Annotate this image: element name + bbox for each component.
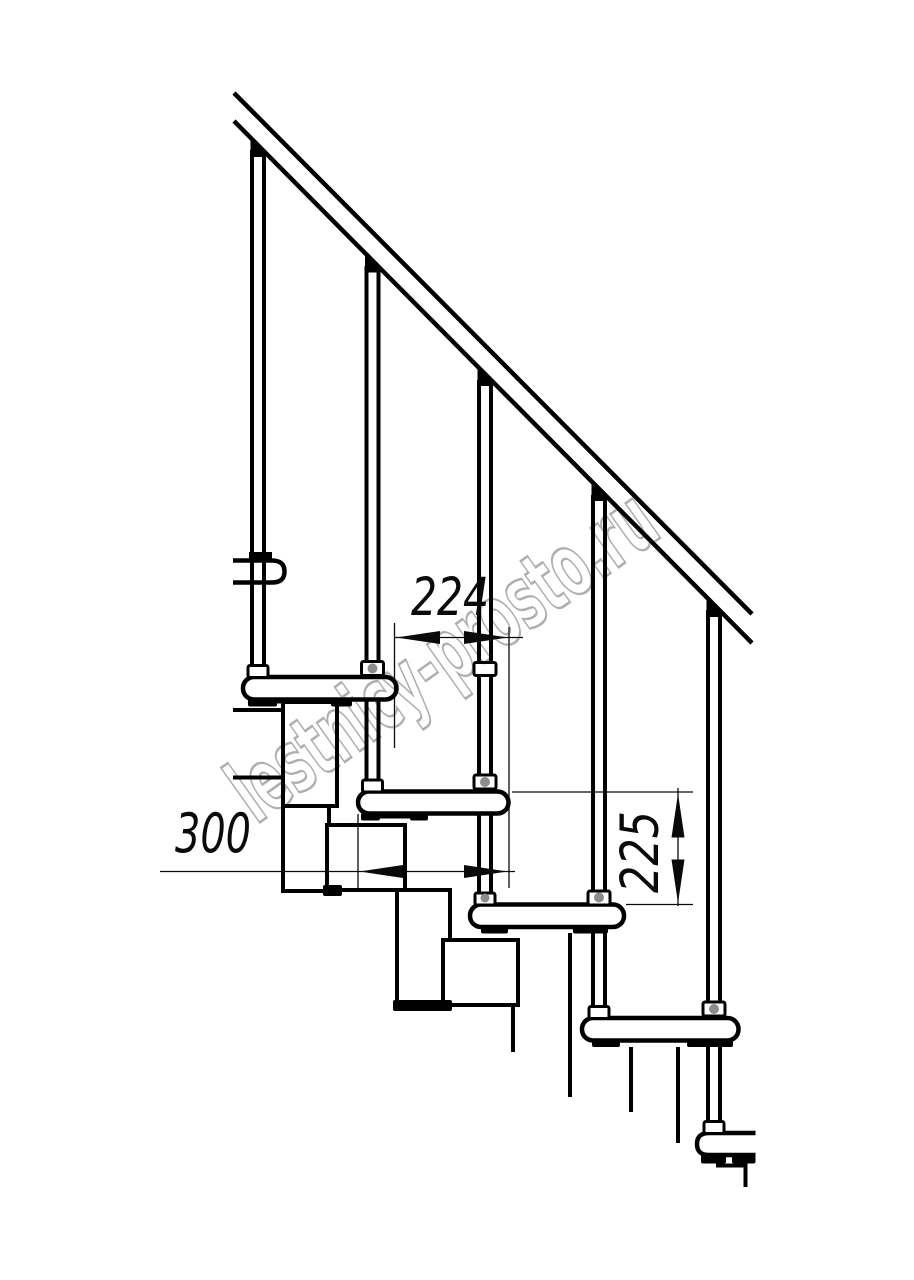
pad bbox=[380, 813, 410, 819]
staircase-technical-drawing: 224 300 225 lestnicy-prosto.ru bbox=[0, 0, 914, 1280]
clamp-circle bbox=[480, 777, 490, 787]
module-pad-a bbox=[323, 885, 342, 896]
module-box-c bbox=[443, 940, 518, 1005]
pad bbox=[410, 813, 428, 821]
tread-6-partial bbox=[697, 1133, 756, 1155]
clamp-circle bbox=[481, 894, 490, 903]
pad bbox=[361, 813, 380, 821]
clamp-circle bbox=[709, 1004, 719, 1014]
arrow-down bbox=[672, 860, 685, 904]
dim-value-depth: 300 bbox=[175, 802, 251, 865]
module-box-b bbox=[327, 825, 405, 890]
baluster-1-foot bbox=[248, 666, 268, 678]
pad bbox=[481, 927, 508, 934]
tread-4 bbox=[470, 905, 624, 928]
dim-value-rise: 225 bbox=[610, 811, 671, 893]
baluster-5-foot bbox=[704, 1122, 724, 1134]
pad bbox=[592, 1040, 620, 1047]
tread-5 bbox=[582, 1018, 739, 1041]
tread-1-partial bbox=[233, 561, 285, 583]
pad bbox=[687, 1040, 733, 1047]
pad bbox=[248, 699, 277, 707]
arrow-right bbox=[464, 865, 508, 878]
bottom-module-cut bbox=[716, 1166, 746, 1188]
baluster-2-foot bbox=[363, 780, 383, 792]
tread-3 bbox=[358, 792, 509, 814]
pad bbox=[573, 927, 608, 934]
arrow-up bbox=[672, 794, 685, 838]
baluster-5 bbox=[708, 610, 720, 1133]
drawing-sheet: 224 300 225 lestnicy-prosto.ru bbox=[0, 0, 914, 1280]
module-pad-b bbox=[393, 1000, 452, 1011]
baluster-1-bracket bbox=[249, 552, 272, 561]
clamp-circle bbox=[594, 893, 604, 903]
pad bbox=[701, 1155, 726, 1164]
baluster-1 bbox=[252, 150, 264, 677]
baluster-4-foot bbox=[589, 1007, 609, 1019]
pad bbox=[732, 1155, 756, 1164]
